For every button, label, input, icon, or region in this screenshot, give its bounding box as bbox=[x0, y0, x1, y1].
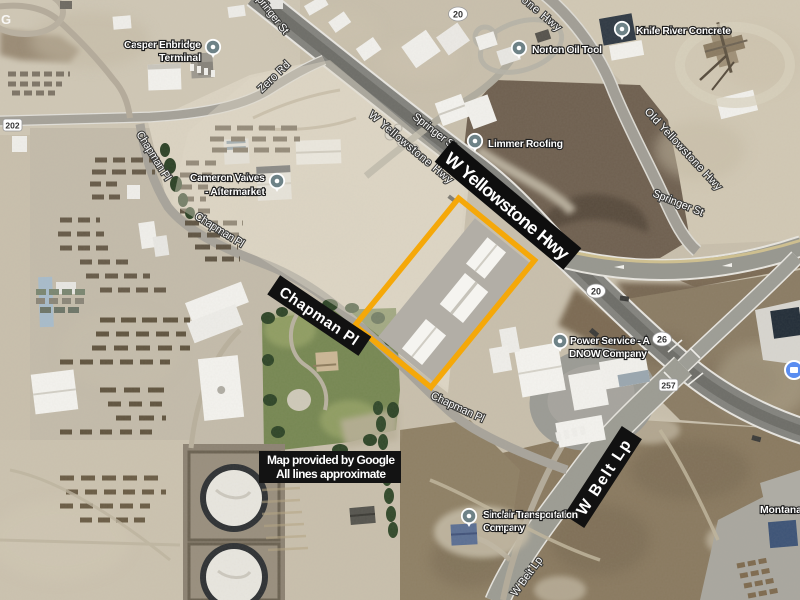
svg-text:Montana: Montana bbox=[760, 504, 800, 516]
svg-text:G: G bbox=[1, 12, 11, 27]
svg-text:257: 257 bbox=[661, 381, 675, 391]
svg-text:20: 20 bbox=[453, 10, 463, 20]
svg-text:Limmer Roofing: Limmer Roofing bbox=[488, 138, 563, 150]
svg-text:Casper Enbridge: Casper Enbridge bbox=[124, 39, 201, 51]
svg-text:26: 26 bbox=[657, 335, 667, 345]
svg-text:Norton Oil Tool: Norton Oil Tool bbox=[532, 44, 602, 56]
svg-text:All lines approximate: All lines approximate bbox=[276, 467, 386, 481]
svg-text:202: 202 bbox=[5, 121, 19, 131]
svg-text:Map provided by Google: Map provided by Google bbox=[267, 453, 395, 467]
svg-text:- Aftermarket: - Aftermarket bbox=[205, 186, 266, 198]
svg-text:Power Service - A: Power Service - A bbox=[570, 335, 650, 347]
svg-text:Knife River Concrete: Knife River Concrete bbox=[636, 25, 731, 37]
svg-text:Cameron Valves: Cameron Valves bbox=[190, 172, 265, 184]
svg-text:Company: Company bbox=[483, 522, 525, 534]
svg-text:Terminal: Terminal bbox=[159, 52, 201, 64]
svg-text:20: 20 bbox=[591, 287, 601, 297]
svg-text:Sinclair Transportation: Sinclair Transportation bbox=[483, 509, 578, 521]
svg-text:DNOW Company: DNOW Company bbox=[569, 348, 647, 360]
